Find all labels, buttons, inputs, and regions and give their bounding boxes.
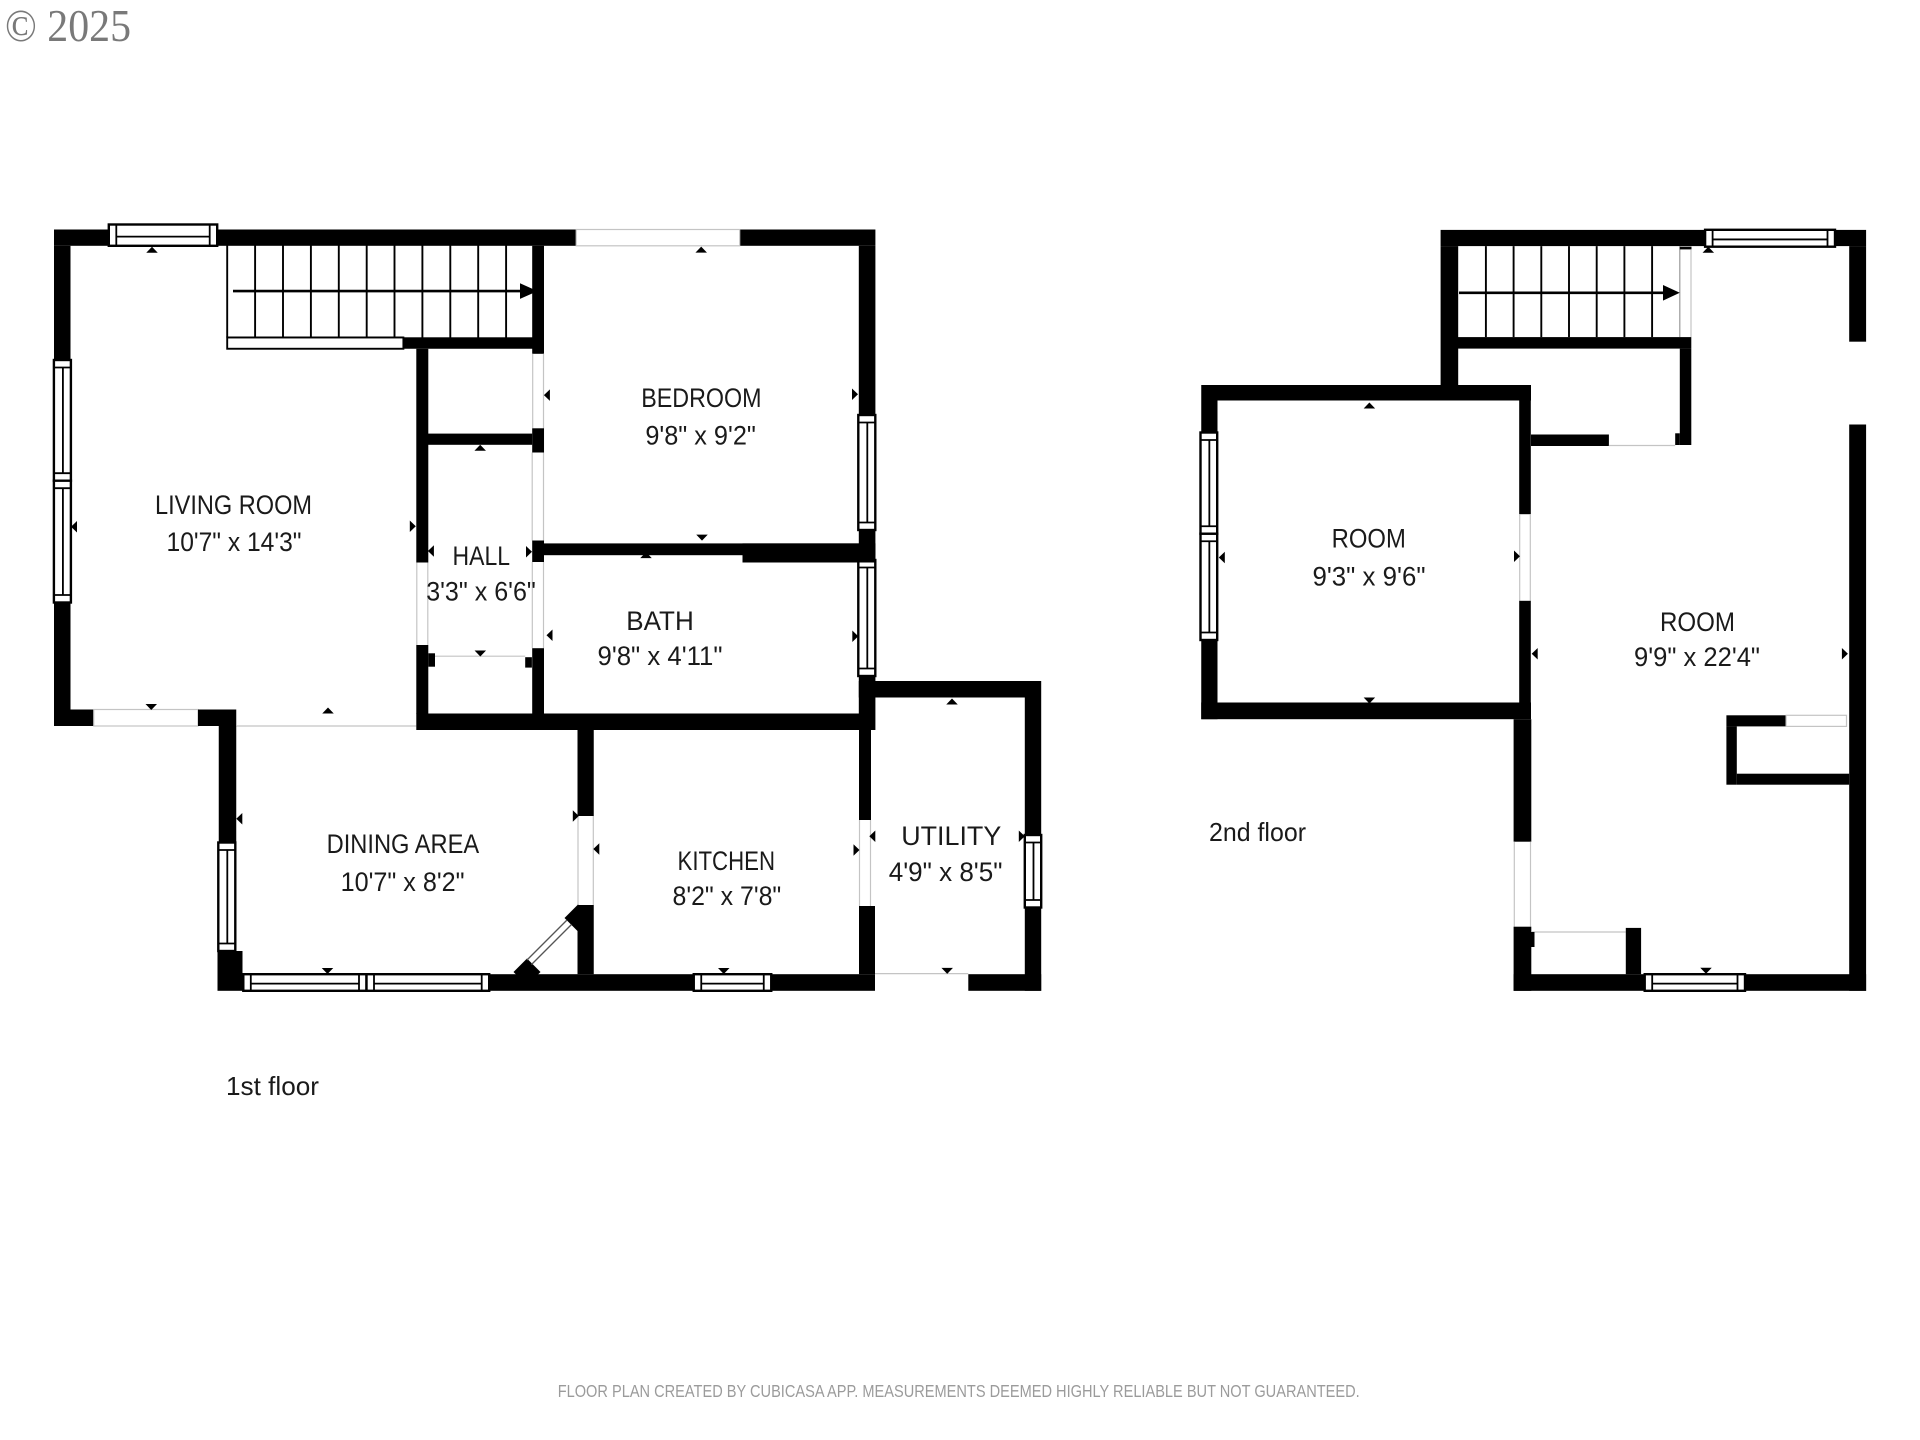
svg-text:ROOM: ROOM (1332, 524, 1406, 554)
svg-text:DINING AREA: DINING AREA (327, 829, 480, 859)
svg-text:4'9" x 8'5": 4'9" x 8'5" (889, 857, 1003, 887)
svg-text:1st floor: 1st floor (226, 1071, 319, 1101)
svg-text:BEDROOM: BEDROOM (641, 383, 761, 413)
svg-text:KITCHEN: KITCHEN (678, 846, 776, 876)
svg-text:HALL: HALL (453, 541, 511, 571)
svg-text:LIVING ROOM: LIVING ROOM (155, 490, 312, 520)
svg-text:FLOOR PLAN CREATED BY CUBICASA: FLOOR PLAN CREATED BY CUBICASA APP. MEAS… (558, 1381, 1360, 1401)
svg-text:8'2" x 7'8": 8'2" x 7'8" (673, 881, 782, 911)
svg-text:© 2025: © 2025 (5, 0, 131, 51)
svg-text:ROOM: ROOM (1660, 607, 1735, 637)
svg-text:9'8" x 4'11": 9'8" x 4'11" (598, 641, 723, 671)
svg-text:BATH: BATH (626, 606, 694, 636)
svg-text:2nd floor: 2nd floor (1209, 817, 1306, 847)
svg-text:3'3" x 6'6": 3'3" x 6'6" (426, 576, 536, 606)
svg-text:10'7" x 8'2": 10'7" x 8'2" (341, 867, 465, 897)
svg-text:10'7" x 14'3": 10'7" x 14'3" (167, 527, 302, 557)
svg-text:9'9" x 22'4": 9'9" x 22'4" (1634, 642, 1760, 672)
svg-text:UTILITY: UTILITY (901, 821, 1001, 851)
svg-text:9'8" x 9'2": 9'8" x 9'2" (645, 421, 756, 451)
svg-text:9'3" x 9'6": 9'3" x 9'6" (1313, 561, 1426, 591)
